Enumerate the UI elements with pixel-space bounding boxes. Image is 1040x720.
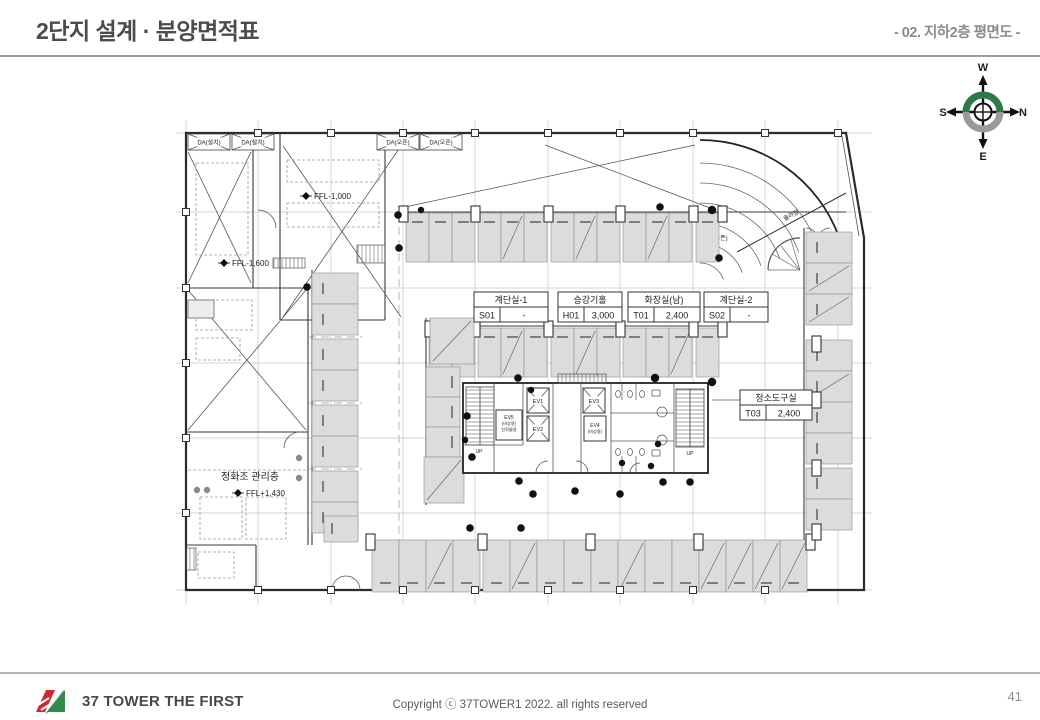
room-name: 승강기홀 [573, 294, 606, 305]
parking-row-bottom [366, 534, 815, 592]
ev2-label: EV2 [533, 427, 543, 433]
room-area: - [748, 311, 751, 321]
compass-north-label: N [1019, 107, 1027, 119]
vent-da-4: DA(오픈) [420, 134, 462, 150]
room-label-stair2: 계단실-2 S02 - [704, 292, 768, 322]
utility-box [188, 300, 214, 318]
section-label: - 02. 지하2층 평면도 - [894, 21, 1020, 42]
compass-rose: W N E S [938, 60, 1028, 162]
vent-label: DA(오픈) [429, 140, 452, 147]
up-left-label: UP [476, 449, 484, 455]
parking-column-right [806, 232, 852, 540]
room-code: S01 [479, 311, 495, 321]
room-area: 2,400 [666, 311, 689, 321]
compass-south-label: S [939, 107, 946, 119]
compass-east-label: E [979, 151, 986, 162]
room-code: T03 [745, 409, 761, 419]
ev5-sub-label: (비상용) [502, 420, 517, 427]
ffl-bottom-label: FFL+1,430 [246, 489, 285, 498]
ffl-top-label: FFL-1,000 [314, 192, 351, 201]
elevator-ev3: EV3 [583, 388, 605, 413]
room-label-cleaning: 청소도구실 T03 2,400 [740, 390, 812, 420]
vent-da-2: DA(설치) [232, 134, 274, 150]
ffl-left-label: FFL-1,600 [232, 259, 269, 268]
room-name: 청소도구실 [755, 393, 796, 403]
floor-plan: DA(설치) DA(설치) DA(오픈) DA(오픈) [0, 0, 1040, 720]
room-name: 계단실-2 [720, 294, 753, 305]
room-label-toilet-m: 화장실(남) T01 2,400 [628, 292, 700, 322]
core: EV1 EV2 EV3 EV4 (비상용) EV5 (비상용) [463, 374, 708, 473]
parking-column-left [312, 273, 358, 542]
vent-label: DA(설치) [197, 139, 220, 147]
room-area: 2,400 [778, 409, 801, 419]
room-label-elev-hall: 승강기홀 H01 3,000 [558, 292, 622, 322]
room-code: S02 [709, 311, 725, 321]
ev1-label: EV1 [533, 399, 543, 405]
copyright: Copyright ⓒ 37TOWER1 2022. all rights re… [0, 696, 1040, 712]
room-name: 화장실(남) [644, 295, 683, 305]
parking-row-top [399, 206, 727, 262]
slide-header: 2단지 설계 · 분양면적표 - 02. 지하2층 평면도 - [0, 0, 1040, 57]
septic-room-label: 정화조 관리층 [221, 471, 279, 483]
shaft-hatch [186, 548, 196, 570]
vent-label: DA(오픈) [386, 140, 409, 147]
room-label-stair1: 계단실-1 S01 - [474, 292, 548, 322]
slide: 2단지 설계 · 분양면적표 - 02. 지하2층 평면도 - W N E S [0, 0, 1040, 720]
ev4-sub-label: (비상용) [588, 428, 603, 435]
compass-west-label: W [978, 62, 989, 74]
mini-stair-2 [357, 245, 385, 263]
vent-da-3: DA(오픈) [377, 134, 419, 150]
room-area: - [523, 311, 526, 321]
core-top-stair [558, 374, 606, 383]
elevator-ev4: EV4 (비상용) [584, 416, 606, 441]
room-area: 3,000 [592, 311, 615, 321]
ev3-label: EV3 [589, 399, 599, 405]
up-right-label: UP [687, 451, 695, 457]
room-code: T01 [633, 311, 649, 321]
page-title: 2단지 설계 · 분양면적표 [36, 12, 259, 46]
slide-footer: 37 TOWER THE FIRST Copyright ⓒ 37TOWER1 … [0, 672, 1040, 720]
page-number: 41 [1008, 689, 1022, 704]
vent-da-1: DA(설치) [188, 134, 230, 150]
vent-label: DA(설치) [241, 139, 264, 147]
elevator-ev2: EV2 [527, 416, 549, 441]
room-name: 계단실-1 [495, 294, 528, 305]
dashed-equipment [188, 160, 399, 586]
room-code: H01 [563, 311, 580, 321]
ev5-sub2-label: 인화물용 [501, 426, 517, 433]
mini-stair-1 [273, 258, 305, 268]
elevator-ev5: EV5 (비상용) 인화물용 [496, 410, 522, 440]
